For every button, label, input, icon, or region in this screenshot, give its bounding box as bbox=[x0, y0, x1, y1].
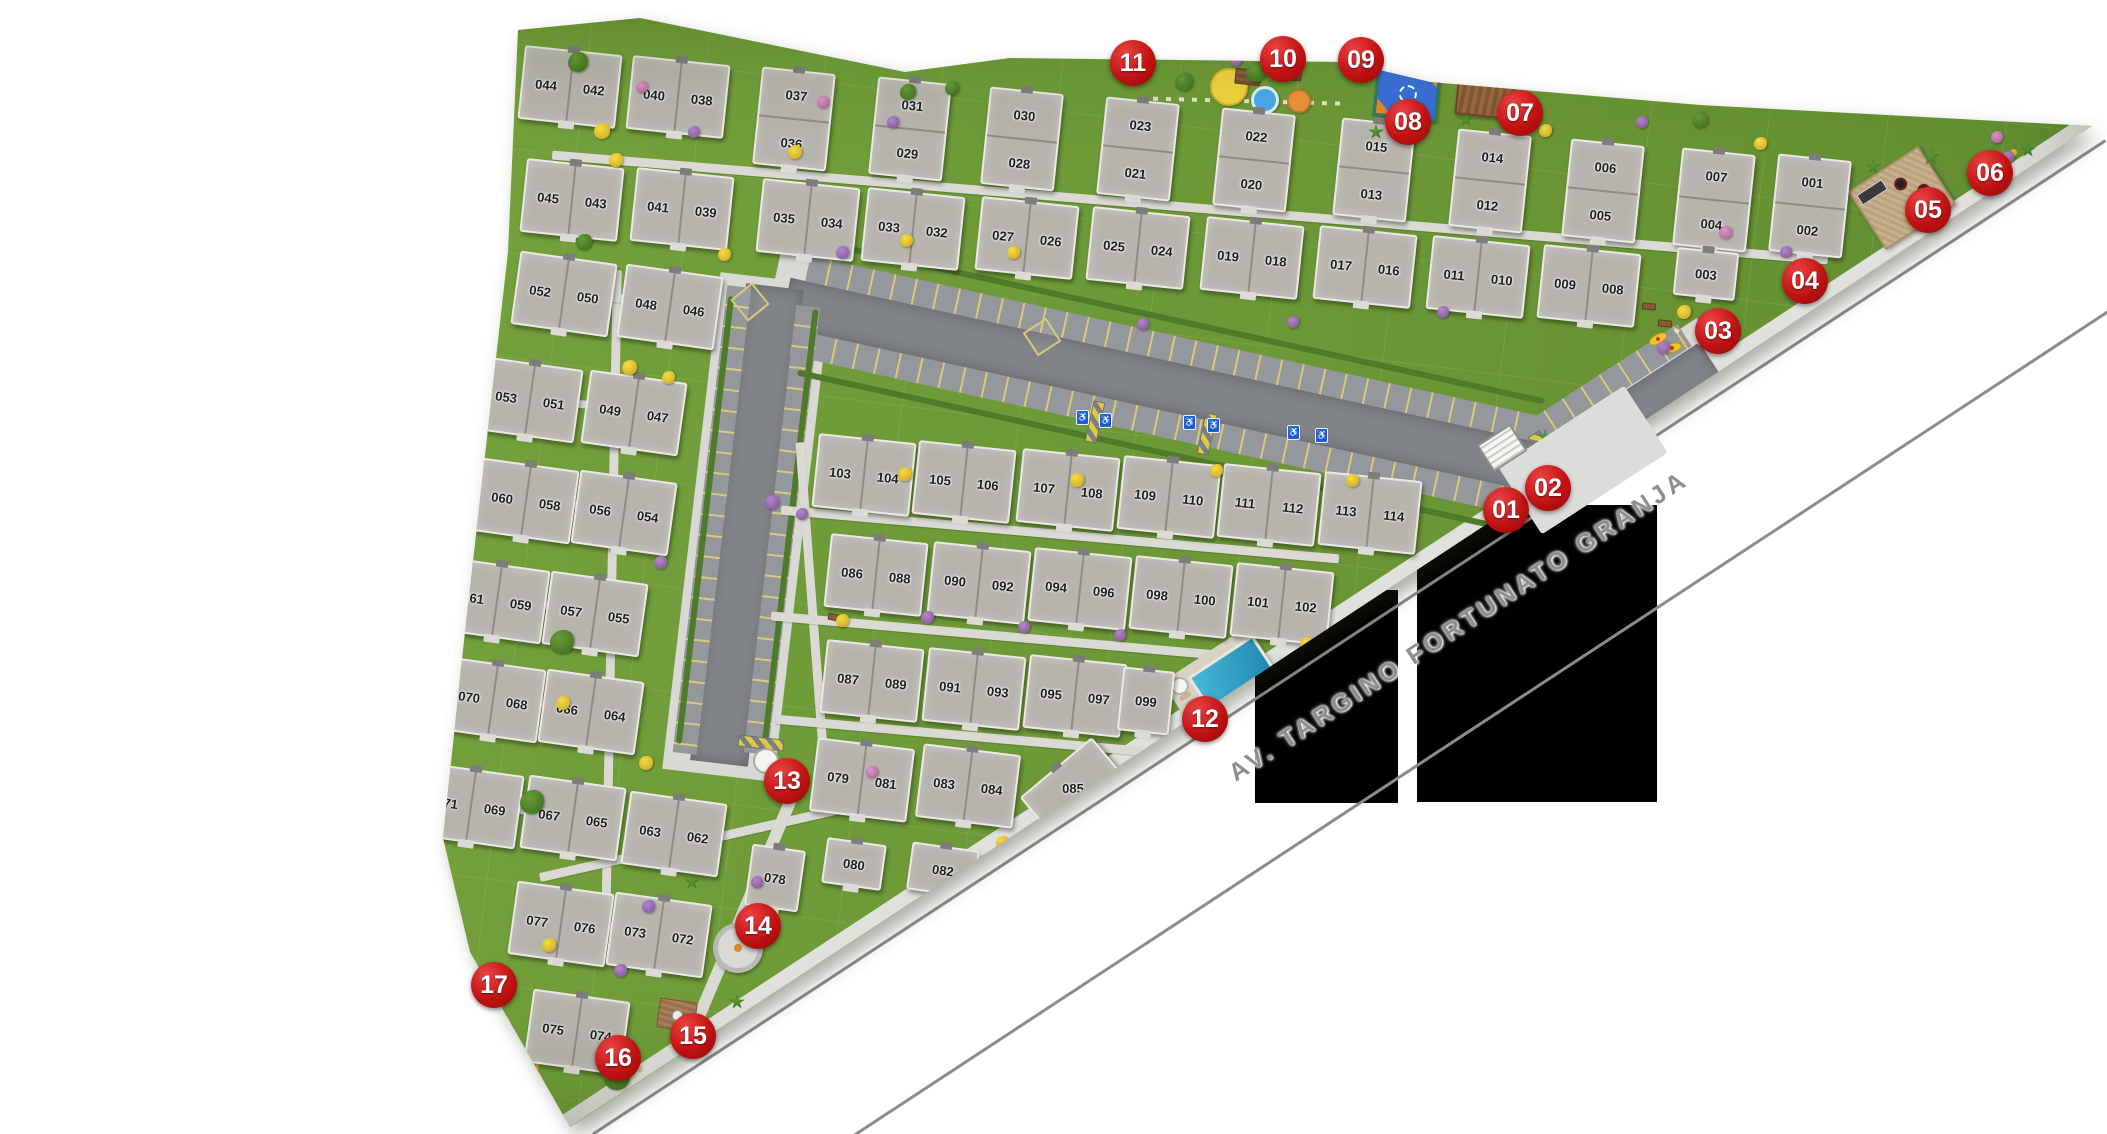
accessible-parking-sign-icon: ♿ bbox=[1099, 413, 1112, 428]
yellow-shrub-icon bbox=[900, 234, 913, 247]
map-marker-12[interactable]: 12 bbox=[1182, 696, 1228, 742]
map-marker-09[interactable]: 09 bbox=[1338, 37, 1384, 83]
house-unit-label: 019 bbox=[1202, 218, 1255, 292]
house-unit-label: 028 bbox=[982, 134, 1057, 189]
pink-shrub-icon bbox=[866, 766, 878, 778]
house-block[interactable]: 003 bbox=[1673, 247, 1740, 301]
house-unit-label: 114 bbox=[1365, 478, 1420, 553]
house-unit-label: 087 bbox=[822, 641, 875, 715]
house-unit-label: 047 bbox=[628, 378, 685, 454]
house-block[interactable]: 007004 bbox=[1672, 147, 1756, 252]
house-block[interactable]: 040038 bbox=[625, 55, 730, 139]
green-shrub-icon bbox=[900, 84, 916, 100]
purple-shrub-icon bbox=[887, 116, 899, 128]
palm-tree-icon bbox=[1257, 693, 1275, 711]
yellow-shrub-icon bbox=[1210, 464, 1223, 477]
house-block[interactable]: 111112 bbox=[1216, 463, 1321, 547]
accessible-parking-sign-icon: ♿ bbox=[1183, 415, 1196, 430]
house-block[interactable]: 006005 bbox=[1561, 138, 1645, 243]
map-marker-13[interactable]: 13 bbox=[764, 758, 810, 804]
pink-shrub-icon bbox=[1991, 131, 2003, 143]
house-unit-label: 013 bbox=[1334, 165, 1409, 220]
house-unit-label: 095 bbox=[1025, 656, 1078, 730]
house-block[interactable]: 017016 bbox=[1312, 225, 1417, 309]
yellow-shrub-icon bbox=[594, 123, 610, 139]
yellow-shrub-icon bbox=[1007, 246, 1020, 259]
house-unit-label: 010 bbox=[1473, 242, 1528, 317]
house-block[interactable]: 086088 bbox=[823, 533, 928, 617]
house-unit-label: 098 bbox=[1131, 557, 1184, 631]
house-unit-label: 024 bbox=[1133, 213, 1188, 288]
house-unit-label: 058 bbox=[520, 466, 577, 542]
garden-bench bbox=[1658, 319, 1673, 327]
table bbox=[1892, 175, 1910, 193]
house-unit-label: 109 bbox=[1119, 457, 1172, 531]
house-block[interactable]: 091093 bbox=[921, 647, 1026, 731]
house-unit-label: 059 bbox=[491, 566, 548, 642]
house-block[interactable]: 033032 bbox=[860, 187, 965, 271]
house-unit-label: 029 bbox=[870, 124, 945, 179]
yellow-shrub-icon bbox=[556, 696, 570, 710]
house-unit-label: 011 bbox=[1428, 237, 1481, 311]
house-unit-label: 022 bbox=[1219, 110, 1293, 163]
purple-shrub-icon bbox=[1137, 318, 1149, 330]
house-unit-label: 044 bbox=[520, 47, 573, 121]
accessible-parking-sign-icon: ♿ bbox=[1207, 418, 1220, 433]
purple-shrub-icon bbox=[1287, 316, 1299, 328]
house-unit-label: 108 bbox=[1063, 455, 1118, 530]
yellow-shrub-icon bbox=[788, 145, 802, 159]
house-block[interactable]: 061059 bbox=[443, 558, 550, 645]
house-unit-label: 111 bbox=[1219, 465, 1272, 539]
house-unit-label: 020 bbox=[1214, 155, 1289, 210]
accessible-parking-sign-icon: ♿ bbox=[1287, 425, 1300, 440]
house-unit-label: 026 bbox=[1022, 203, 1077, 278]
house-unit-label: 112 bbox=[1264, 470, 1319, 545]
map-marker-05[interactable]: 05 bbox=[1905, 187, 1951, 233]
purple-shrub-icon bbox=[614, 964, 627, 977]
house-block[interactable]: 109110 bbox=[1116, 455, 1221, 539]
house-unit-label: 006 bbox=[1568, 141, 1642, 194]
house-unit-label: 030 bbox=[987, 89, 1061, 142]
purple-shrub-icon bbox=[1018, 621, 1030, 633]
house-block[interactable]: 001002 bbox=[1768, 153, 1852, 258]
house-unit-label: 100 bbox=[1176, 562, 1231, 637]
yellow-shrub-icon bbox=[622, 360, 637, 375]
map-marker-04[interactable]: 04 bbox=[1782, 258, 1828, 304]
house-block[interactable]: 094096 bbox=[1027, 547, 1132, 631]
house-unit-label: 106 bbox=[959, 447, 1014, 522]
house-block[interactable]: 014012 bbox=[1448, 128, 1532, 233]
house-block[interactable]: 060058 bbox=[472, 458, 579, 545]
house-unit-label: 072 bbox=[653, 900, 710, 976]
house-unit-label: 076 bbox=[555, 889, 612, 965]
palm-tree-icon bbox=[684, 874, 700, 890]
house-unit-label: 045 bbox=[522, 160, 575, 234]
house-unit-label: 041 bbox=[632, 169, 685, 243]
garden-bench bbox=[1642, 302, 1657, 310]
house-unit-label: 084 bbox=[963, 751, 1019, 826]
yellow-shrub-icon bbox=[1300, 637, 1313, 650]
house-unit-label: 007 bbox=[1679, 150, 1753, 203]
house-unit-label: 080 bbox=[823, 839, 884, 888]
house-unit-label: 017 bbox=[1315, 227, 1368, 301]
house-unit-label: 085 bbox=[1028, 763, 1118, 813]
house-unit-label: 092 bbox=[974, 548, 1029, 623]
house-unit-label: 064 bbox=[585, 677, 642, 753]
house-block[interactable]: 083084 bbox=[915, 743, 1021, 828]
house-unit-label: 033 bbox=[863, 189, 916, 263]
pink-shrub-icon bbox=[817, 96, 829, 108]
house-unit-label: 051 bbox=[524, 365, 581, 441]
pink-shrub-icon bbox=[1114, 784, 1126, 796]
yellow-shrub-icon bbox=[1539, 124, 1552, 137]
house-unit-label: 091 bbox=[924, 649, 977, 723]
house-unit-label: 065 bbox=[567, 783, 624, 859]
house-block[interactable]: 067065 bbox=[519, 775, 626, 862]
house-unit-label: 055 bbox=[589, 579, 646, 655]
house-block[interactable]: 082 bbox=[906, 842, 980, 899]
yellow-shrub-icon bbox=[718, 248, 731, 261]
house-unit-label: 012 bbox=[1450, 176, 1525, 231]
map-marker-17[interactable]: 17 bbox=[471, 962, 517, 1008]
house-unit-label: 086 bbox=[826, 535, 879, 609]
house-unit-label: 016 bbox=[1360, 232, 1415, 307]
purple-shrub-icon bbox=[1230, 54, 1242, 66]
green-shrub-icon bbox=[661, 1087, 683, 1109]
house-block[interactable]: 041039 bbox=[629, 167, 734, 251]
house-unit-label: 102 bbox=[1277, 569, 1332, 644]
house-unit-label: 003 bbox=[1675, 249, 1737, 299]
map-marker-14[interactable]: 14 bbox=[735, 903, 781, 949]
house-unit-label: 040 bbox=[628, 57, 681, 131]
house-block[interactable]: 070068 bbox=[439, 657, 546, 744]
house-unit-label: 054 bbox=[618, 478, 675, 554]
purple-shrub-icon bbox=[1636, 116, 1648, 128]
house-unit-label: 046 bbox=[664, 272, 721, 348]
yellow-shrub-icon bbox=[1346, 474, 1359, 487]
house-unit-label: 107 bbox=[1018, 450, 1071, 524]
house-unit-label: 001 bbox=[1775, 156, 1849, 209]
house-unit-label: 096 bbox=[1075, 554, 1130, 629]
house-unit-label: 089 bbox=[867, 646, 922, 721]
purple-shrub-icon bbox=[765, 495, 779, 509]
yellow-shrub-icon bbox=[609, 153, 623, 167]
house-block[interactable]: 030028 bbox=[980, 86, 1064, 191]
house-block[interactable]: 099 bbox=[1117, 666, 1175, 735]
house-unit-label: 038 bbox=[673, 62, 728, 137]
house-block[interactable]: 079081 bbox=[809, 737, 915, 822]
house-unit-label: 027 bbox=[977, 198, 1030, 272]
yellow-shrub-icon bbox=[1754, 137, 1767, 150]
house-unit-label: 105 bbox=[914, 442, 967, 516]
house-block[interactable]: 023021 bbox=[1096, 96, 1180, 201]
purple-shrub-icon bbox=[796, 508, 808, 520]
map-marker-01[interactable]: 01 bbox=[1483, 487, 1529, 533]
site-plan-canvas: AV. TARGINO FORTUNATO GRANJA bbox=[0, 0, 2107, 1134]
house-block[interactable]: 071069 bbox=[417, 763, 524, 850]
yellow-shrub-icon bbox=[639, 756, 653, 770]
house-block[interactable]: 107108 bbox=[1015, 448, 1120, 532]
house-unit-label: 008 bbox=[1584, 251, 1639, 326]
purple-shrub-icon bbox=[836, 246, 849, 259]
accessible-parking-sign-icon: ♿ bbox=[1315, 428, 1328, 443]
purple-shrub-icon bbox=[921, 611, 934, 624]
purple-shrub-icon bbox=[1948, 236, 1960, 248]
house-unit-label: 088 bbox=[871, 540, 926, 615]
purple-shrub-icon bbox=[642, 900, 655, 913]
house-unit-label: 034 bbox=[803, 185, 858, 260]
yellow-shrub-icon bbox=[996, 836, 1009, 849]
house-block[interactable]: 027026 bbox=[974, 196, 1079, 280]
house-unit-label: 090 bbox=[929, 543, 982, 617]
map-marker-11[interactable]: 11 bbox=[1110, 40, 1156, 86]
house-unit-label: 018 bbox=[1247, 223, 1302, 298]
map-marker-16[interactable]: 16 bbox=[595, 1035, 641, 1081]
house-unit-label: 082 bbox=[908, 844, 978, 896]
green-shrub-icon bbox=[1175, 73, 1193, 91]
house-block[interactable]: 098100 bbox=[1128, 555, 1233, 639]
map-marker-15[interactable]: 15 bbox=[670, 1013, 716, 1059]
house-unit-label: 009 bbox=[1539, 246, 1592, 320]
purple-shrub-icon bbox=[751, 876, 763, 888]
house-block[interactable]: 077076 bbox=[507, 881, 614, 968]
green-shrub-icon bbox=[576, 234, 592, 250]
house-block[interactable]: 066064 bbox=[537, 669, 644, 756]
house-block[interactable]: 025024 bbox=[1085, 206, 1190, 290]
house-unit-label: 101 bbox=[1232, 564, 1285, 638]
house-unit-label: 021 bbox=[1098, 144, 1173, 199]
accessible-parking-sign-icon: ♿ bbox=[1076, 410, 1089, 425]
map-marker-03[interactable]: 03 bbox=[1695, 308, 1741, 354]
house-block[interactable]: 087089 bbox=[819, 639, 924, 723]
yellow-shrub-icon bbox=[836, 614, 849, 627]
playground-circle bbox=[1287, 89, 1311, 113]
kitchen-counter bbox=[1856, 179, 1888, 205]
house-unit-label: 043 bbox=[567, 165, 622, 240]
house-block[interactable]: 056054 bbox=[570, 470, 677, 557]
house-unit-label: 093 bbox=[969, 654, 1024, 729]
map-marker-07[interactable]: 07 bbox=[1497, 90, 1543, 136]
house-block[interactable]: 113114 bbox=[1317, 471, 1422, 555]
house-block[interactable]: 101102 bbox=[1229, 562, 1334, 646]
purple-shrub-icon bbox=[1437, 306, 1449, 318]
house-unit-label: 036 bbox=[754, 114, 829, 169]
house-unit-label: 094 bbox=[1030, 549, 1083, 623]
house-block[interactable]: 053051 bbox=[476, 357, 583, 444]
house-block[interactable]: 048046 bbox=[616, 264, 723, 351]
green-shrub-icon bbox=[945, 81, 959, 95]
house-block[interactable]: 080 bbox=[821, 837, 887, 891]
yellow-shrub-icon bbox=[662, 371, 675, 384]
house-block[interactable]: 009008 bbox=[1536, 244, 1641, 328]
house-block[interactable]: 019018 bbox=[1199, 216, 1304, 300]
purple-shrub-icon bbox=[1657, 341, 1670, 354]
yellow-shrub-icon bbox=[1677, 305, 1691, 319]
house-unit-label: 050 bbox=[558, 259, 615, 335]
yellow-shrub-icon bbox=[1070, 473, 1084, 487]
house-unit-label: 023 bbox=[1103, 99, 1177, 152]
purple-shrub-icon bbox=[1780, 246, 1792, 258]
house-unit-label: 062 bbox=[668, 799, 725, 875]
pink-shrub-icon bbox=[636, 81, 648, 93]
purple-shrub-icon bbox=[654, 556, 667, 569]
house-block[interactable]: 063062 bbox=[620, 791, 727, 878]
house-unit-label: 005 bbox=[1563, 186, 1638, 241]
house-block[interactable]: 052050 bbox=[510, 251, 617, 338]
court-corner bbox=[1422, 72, 1438, 88]
house-block[interactable]: 090092 bbox=[926, 541, 1031, 625]
house-block[interactable]: 095097 bbox=[1022, 654, 1127, 738]
map-marker-06[interactable]: 06 bbox=[1967, 150, 2013, 196]
house-unit-label: 081 bbox=[857, 745, 913, 820]
house-unit-label: 032 bbox=[908, 194, 963, 269]
house-unit-label: 035 bbox=[758, 180, 811, 254]
house-unit-label: 025 bbox=[1088, 208, 1141, 282]
house-block[interactable]: 022020 bbox=[1212, 107, 1296, 212]
map-marker-02[interactable]: 02 bbox=[1525, 465, 1571, 511]
yellow-shrub-icon bbox=[2000, 224, 2012, 236]
house-block[interactable]: 045043 bbox=[519, 158, 624, 242]
house-unit-label: 014 bbox=[1455, 131, 1529, 184]
pink-shrub-icon bbox=[1719, 226, 1732, 239]
purple-shrub-icon bbox=[688, 126, 700, 138]
house-unit-label: 103 bbox=[814, 435, 867, 509]
green-shrub-icon bbox=[550, 630, 574, 654]
green-shrub-icon bbox=[520, 790, 544, 814]
house-unit-label: 099 bbox=[1119, 669, 1173, 734]
map-marker-10[interactable]: 10 bbox=[1260, 36, 1306, 82]
condominium-grounds: 0440420400380370360310290300280230210220… bbox=[0, 0, 2107, 1134]
yellow-shrub-icon bbox=[542, 938, 556, 952]
house-unit-label: 004 bbox=[1674, 195, 1749, 250]
house-unit-label: 069 bbox=[465, 771, 522, 847]
house-unit-label: 039 bbox=[677, 174, 732, 249]
house-block[interactable]: 105106 bbox=[911, 440, 1016, 524]
green-shrub-icon bbox=[568, 52, 588, 72]
yellow-shrub-icon bbox=[898, 467, 912, 481]
green-shrub-icon bbox=[1692, 112, 1708, 128]
purple-shrub-icon bbox=[1114, 629, 1126, 641]
map-marker-08[interactable]: 08 bbox=[1385, 99, 1431, 145]
house-unit-label: 068 bbox=[487, 665, 544, 741]
